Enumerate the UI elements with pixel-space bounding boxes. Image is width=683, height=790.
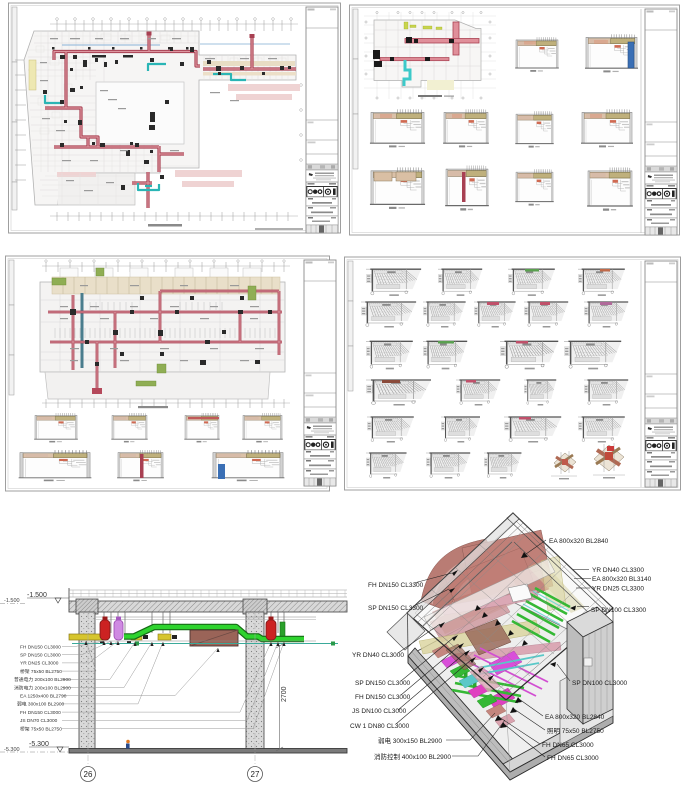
svg-text:桥架 75x50 BL2750: 桥架 75x50 BL2750 <box>20 725 62 732</box>
svg-text:普通电力 200x100 BL2900: 普通电力 200x100 BL2900 <box>14 676 71 683</box>
svg-text:YR DN40 CL3000: YR DN40 CL3000 <box>352 652 404 659</box>
svg-text:JS DN70 CL3000: JS DN70 CL3000 <box>20 718 58 724</box>
svg-text:弱电 300x100 BL2900: 弱电 300x100 BL2900 <box>17 701 65 708</box>
svg-text:SP DN150 CL3000: SP DN150 CL3000 <box>20 653 61 659</box>
svg-text:26: 26 <box>84 770 93 779</box>
svg-text:桥架 75x50 BL2750: 桥架 75x50 BL2750 <box>20 668 62 675</box>
svg-text:CW 1 DN80 CL3000: CW 1 DN80 CL3000 <box>350 723 410 730</box>
svg-text:2700: 2700 <box>281 686 288 702</box>
svg-text:FH DN150 CL3000: FH DN150 CL3000 <box>20 644 61 650</box>
svg-text:YR DN40 CL3300: YR DN40 CL3300 <box>592 567 644 574</box>
svg-text:YR DN25 CL3000: YR DN25 CL3000 <box>20 661 59 667</box>
svg-text:FH DN150 CL3000: FH DN150 CL3000 <box>20 710 61 716</box>
svg-text:SP DN150 CL3000: SP DN150 CL3000 <box>355 680 411 687</box>
svg-text:FH DN150 CL3300: FH DN150 CL3300 <box>368 582 424 589</box>
svg-text:SP DN100 CL3300: SP DN100 CL3300 <box>591 607 647 614</box>
svg-text:EA 800x320 BL3140: EA 800x320 BL3140 <box>592 576 652 583</box>
svg-text:EA 800x320 BL2840: EA 800x320 BL2840 <box>549 538 609 545</box>
svg-text:JS DN100 CL3000: JS DN100 CL3000 <box>352 708 407 715</box>
svg-text:弱电 300x150 BL2900: 弱电 300x150 BL2900 <box>378 736 442 745</box>
svg-text:FH DN65 CL3000: FH DN65 CL3000 <box>547 755 599 762</box>
svg-text:FH DN65 CL3000: FH DN65 CL3000 <box>542 742 594 749</box>
svg-text:照明 75x50 BL2750: 照明 75x50 BL2750 <box>547 727 604 735</box>
svg-text:FH DN150 CL3000: FH DN150 CL3000 <box>355 694 411 701</box>
svg-text:YR DN25 CL3300: YR DN25 CL3300 <box>592 586 644 593</box>
svg-text:27: 27 <box>251 770 260 779</box>
svg-text:-1.500: -1.500 <box>4 598 20 604</box>
svg-text:EA 800x320 BL2840: EA 800x320 BL2840 <box>545 714 605 721</box>
svg-text:SP DN150 CL3300: SP DN150 CL3300 <box>368 605 424 612</box>
svg-text:SP DN100 CL3000: SP DN100 CL3000 <box>572 680 628 687</box>
svg-text:消防电力 200x100 BL2900: 消防电力 200x100 BL2900 <box>14 684 71 691</box>
svg-text:消防控制 400x100 BL2900: 消防控制 400x100 BL2900 <box>374 752 451 761</box>
svg-text:EA 1250x400 BL2790: EA 1250x400 BL2790 <box>20 694 67 700</box>
